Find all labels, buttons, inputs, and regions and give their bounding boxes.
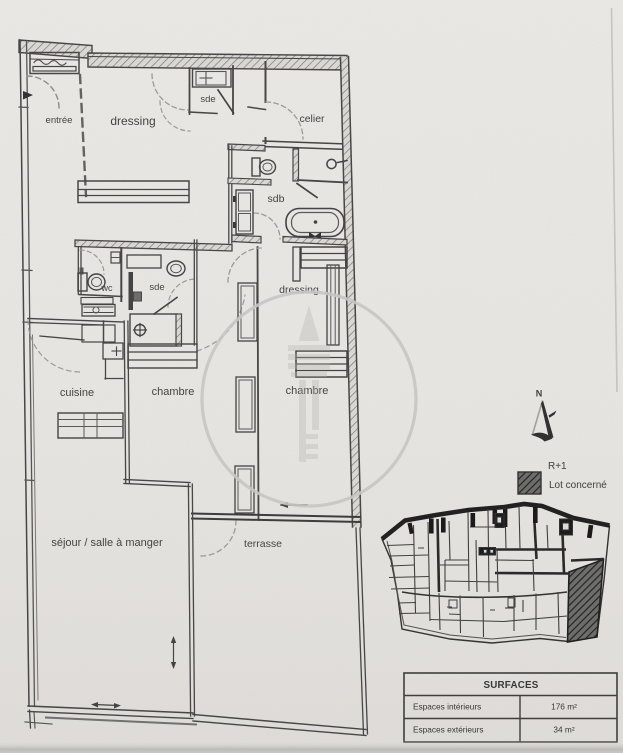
svg-text:cuisine: cuisine — [60, 387, 94, 399]
svg-text:34 m²: 34 m² — [553, 725, 574, 735]
svg-text:entrée: entrée — [46, 115, 73, 126]
svg-text:wc: wc — [101, 283, 113, 293]
svg-text:N: N — [536, 389, 543, 399]
svg-text:Lot concerné: Lot concerné — [549, 480, 607, 491]
svg-text:R+1: R+1 — [548, 461, 567, 472]
svg-text:Espaces intérieurs: Espaces intérieurs — [413, 702, 481, 712]
svg-text:sde: sde — [149, 282, 164, 293]
svg-text:séjour / salle à manger: séjour / salle à manger — [51, 537, 163, 549]
svg-text:dressing: dressing — [110, 114, 155, 128]
svg-text:terrasse: terrasse — [244, 538, 282, 550]
svg-text:chambre: chambre — [152, 386, 195, 398]
svg-text:Espaces extérieurs: Espaces extérieurs — [413, 725, 484, 735]
svg-text:celier: celier — [299, 113, 325, 125]
svg-text:176 m²: 176 m² — [551, 702, 577, 712]
svg-text:sdb: sdb — [268, 193, 285, 205]
svg-text:SURFACES: SURFACES — [484, 680, 539, 691]
svg-text:sde: sde — [200, 94, 215, 105]
svg-text:chambre: chambre — [286, 385, 329, 397]
